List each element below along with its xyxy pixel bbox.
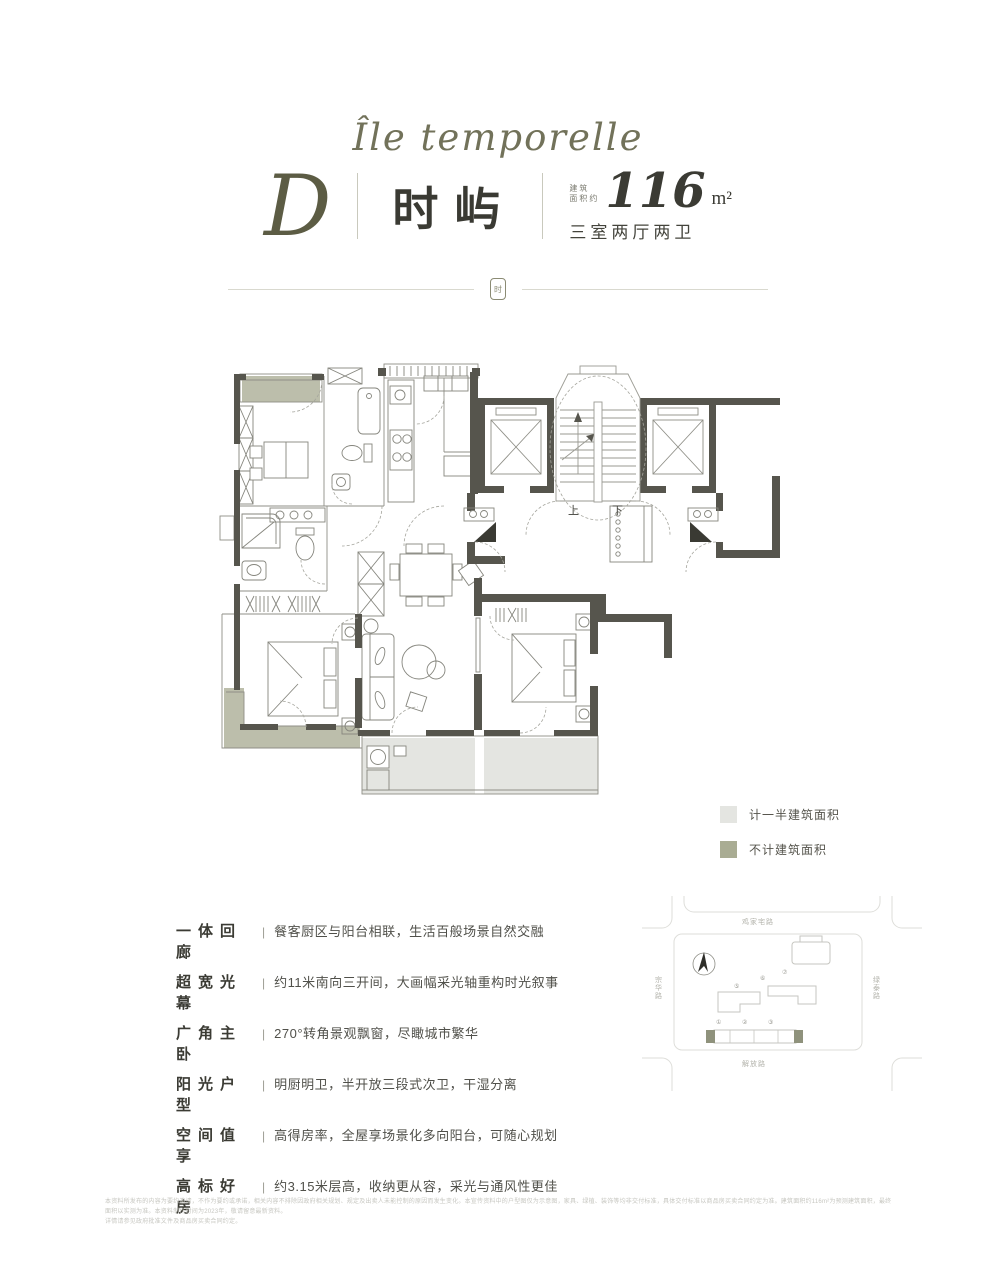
disclaimer-line: 本资料所发布的内容为要约邀请，不作为要约或承诺，相关内容不排除因政府相关规划、规… bbox=[105, 1197, 897, 1217]
legend-swatch-half bbox=[720, 806, 737, 823]
chair bbox=[250, 468, 262, 480]
area-block: 建筑 面积约 116 m² 三室两厅两卫 bbox=[569, 170, 732, 243]
svg-text:②: ② bbox=[742, 1019, 748, 1026]
floor-plan-drawing: 上 下 bbox=[212, 356, 792, 806]
balcony-cabinet bbox=[367, 770, 389, 790]
svg-text:⑥: ⑥ bbox=[760, 975, 765, 982]
svg-text:③: ③ bbox=[768, 1019, 773, 1026]
feature-row: 广角主卧 | 270°转角景观飘窗，尽瞰城市繁华 bbox=[176, 1022, 559, 1064]
dining-table bbox=[390, 544, 462, 606]
closet-hatch-icon bbox=[246, 596, 320, 612]
study-room bbox=[239, 406, 308, 504]
toilet-icon bbox=[342, 444, 372, 462]
header-divider-right bbox=[542, 173, 543, 239]
road-label-top: 鸡家宅路 bbox=[742, 917, 774, 926]
legend-item-half: 计一半建筑面积 bbox=[720, 806, 840, 823]
stair-down-label: 下 bbox=[612, 505, 623, 517]
svg-text:①: ① bbox=[716, 1019, 721, 1026]
kitchen-counter bbox=[444, 456, 472, 476]
bathroom-2 bbox=[242, 508, 325, 612]
feature-row: 空间值享 | 高得房率，全屋享场景化多向阳台，可随心规划 bbox=[176, 1124, 559, 1166]
bathtub-icon bbox=[358, 388, 380, 434]
sink-icon bbox=[242, 561, 266, 580]
sofa-icon bbox=[362, 634, 394, 720]
plan-legend: 计一半建筑面积 不计建筑面积 bbox=[720, 806, 840, 858]
seal-emblem-icon: 时 bbox=[490, 278, 506, 300]
staircase bbox=[556, 366, 640, 502]
coffee-table-icon bbox=[402, 645, 436, 679]
feature-row: 阳光户型 | 明厨明卫，半开放三段式次卫，干湿分离 bbox=[176, 1073, 559, 1115]
kitchen-sink-icon bbox=[390, 386, 411, 404]
brand-script-title: Île temporelle bbox=[0, 116, 996, 159]
site-map-drawing: ① ② ③ ⑤ ⑥ ⑦ 鸡家宅路 解放路 宗华路 绿泰路 bbox=[642, 896, 922, 1091]
stove-icon bbox=[390, 430, 412, 470]
door-arcs bbox=[280, 376, 716, 733]
area-unit: m² bbox=[712, 188, 732, 212]
unit-letter: D bbox=[264, 168, 331, 244]
highlight-building bbox=[794, 1030, 803, 1043]
toilet-icon bbox=[296, 528, 314, 560]
balcony-2-shade bbox=[484, 738, 598, 794]
shaft-icon bbox=[690, 522, 712, 542]
bathroom-1 bbox=[328, 368, 380, 490]
legend-swatch-none bbox=[720, 841, 737, 858]
shaft-icon bbox=[474, 522, 496, 542]
layout-text: 三室两厅两卫 bbox=[569, 218, 695, 243]
living-dining bbox=[358, 544, 462, 720]
sink-icon bbox=[332, 474, 350, 490]
elevator-left bbox=[478, 398, 554, 493]
svg-text:⑤: ⑤ bbox=[734, 983, 739, 990]
legend-item-none: 不计建筑面积 bbox=[720, 841, 840, 858]
road-label-left: 宗华路 bbox=[655, 975, 663, 1000]
page: Île temporelle D 时屿 建筑 面积约 116 m² 三室两厅两卫… bbox=[0, 0, 996, 1280]
feature-row: 超宽光幕 | 约11米南向三开间，大画幅采光轴重构时光叙事 bbox=[176, 971, 559, 1013]
area-prefix: 建筑 面积约 bbox=[569, 184, 599, 212]
vent-slot bbox=[658, 408, 698, 415]
unit-name: 时屿 bbox=[384, 173, 516, 239]
window-rack-icon bbox=[390, 366, 467, 376]
svg-text:⑦: ⑦ bbox=[782, 969, 788, 976]
emblem-divider: 时 bbox=[228, 278, 768, 300]
nightstand-icon bbox=[576, 614, 592, 722]
kitchen bbox=[388, 366, 472, 502]
road-label-right: 绿泰路 bbox=[873, 975, 881, 1000]
vent-slot bbox=[496, 408, 536, 415]
shaft-box-icon bbox=[328, 368, 362, 384]
sliding-door bbox=[476, 618, 480, 672]
feature-row: 一体回廊 | 餐客厨区与阳台相联，生活百般场景自然交融 bbox=[176, 920, 559, 962]
site-map: ① ② ③ ⑤ ⑥ ⑦ 鸡家宅路 解放路 宗华路 绿泰路 bbox=[642, 896, 922, 1091]
feature-list: 一体回廊 | 餐客厨区与阳台相联，生活百般场景自然交融 超宽光幕 | 约11米南… bbox=[176, 920, 559, 1217]
vanity bbox=[270, 508, 325, 522]
elevator-right bbox=[640, 398, 716, 493]
area-value: 116 bbox=[605, 170, 705, 212]
balcony-sink-icon bbox=[394, 746, 406, 756]
disclaimer: 本资料所发布的内容为要约邀请，不作为要约或承诺，相关内容不排除因政府相关规划、规… bbox=[105, 1197, 897, 1227]
road-label-bottom: 解放路 bbox=[742, 1059, 766, 1068]
chair bbox=[250, 446, 262, 458]
wardrobe-hatch-icon bbox=[496, 608, 526, 622]
header-divider-left bbox=[357, 173, 358, 239]
washing-machine-icon bbox=[367, 746, 389, 768]
disclaimer-line: 详情请参见政府批准文件及商品房买卖合同约定。 bbox=[105, 1217, 897, 1227]
master-bedroom bbox=[268, 624, 358, 734]
floor-plan: 上 下 bbox=[212, 356, 792, 806]
unit-header: D 时屿 建筑 面积约 116 m² 三室两厅两卫 bbox=[0, 168, 996, 244]
highlight-building bbox=[706, 1030, 715, 1043]
